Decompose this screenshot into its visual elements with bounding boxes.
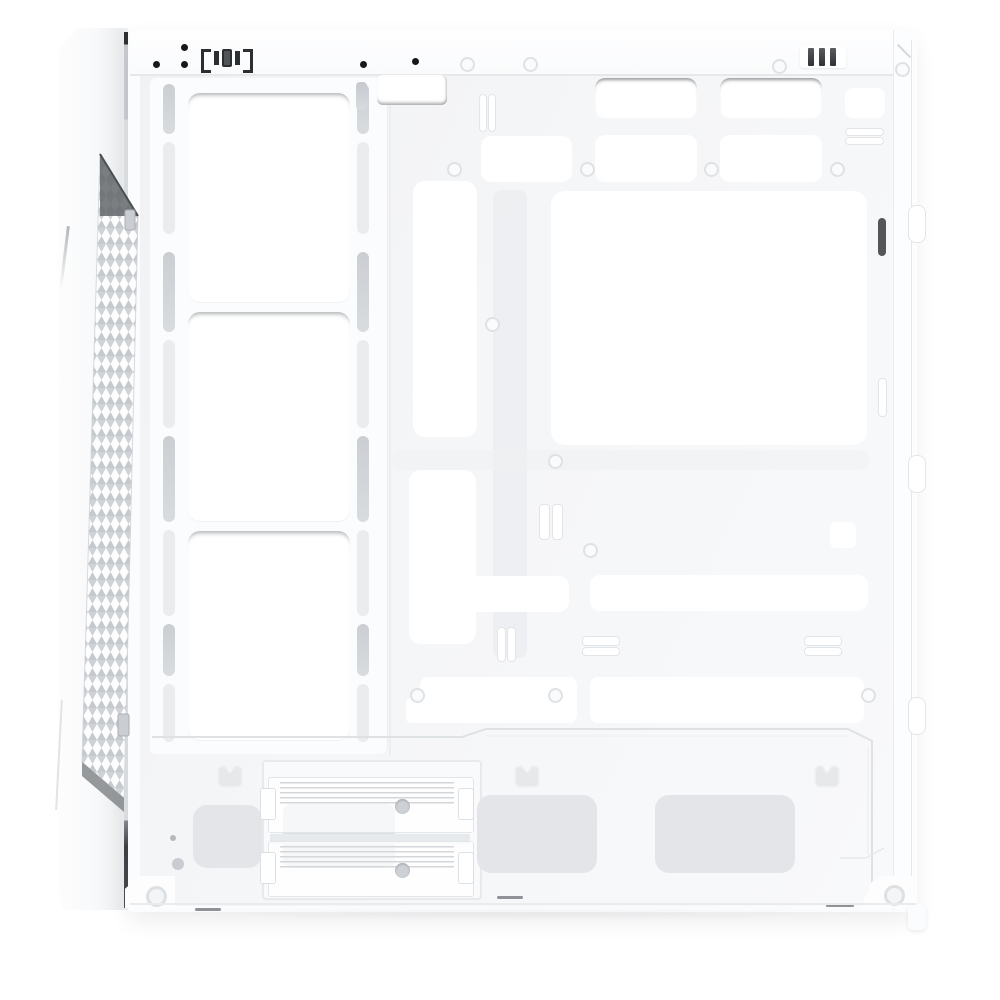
screw-dot	[153, 61, 160, 68]
vent-slot	[539, 504, 550, 540]
cable-cutout	[481, 136, 572, 182]
drive-tray-vents	[280, 782, 454, 806]
pc-case-product-photo	[0, 0, 1000, 1000]
cable-cutout	[413, 181, 477, 437]
cable-tie-cutout	[512, 762, 542, 789]
fan-rail-slot	[357, 684, 369, 742]
fan-opening-cutout	[188, 531, 350, 741]
drive-tray-clip	[458, 852, 474, 884]
screw-hole	[447, 162, 462, 177]
cable-cutout	[590, 575, 868, 611]
drive-tray-hole	[395, 863, 410, 878]
vent-slot	[507, 627, 516, 662]
latch-bar	[808, 48, 814, 66]
cable-cutout	[720, 78, 822, 118]
cable-cutout	[551, 191, 867, 445]
ground-shadow	[120, 910, 920, 918]
fan-rail-slot	[357, 436, 369, 522]
drive-tray-vents	[280, 846, 454, 870]
fan-opening-cutout	[188, 312, 350, 522]
vent-slot	[582, 647, 620, 656]
top-panel-latch-right	[800, 46, 846, 68]
screw-hole	[548, 688, 563, 703]
tray-seam-vertical	[389, 76, 391, 756]
vent-slot	[479, 94, 487, 132]
drive-tray-clip	[260, 788, 276, 820]
fan-rail-slot	[163, 436, 175, 522]
vent-slot	[845, 137, 884, 145]
screw-hole	[772, 59, 787, 74]
case-bottom-edge	[130, 903, 916, 905]
cable-cutout	[409, 470, 476, 644]
vent-pad	[655, 795, 795, 873]
drive-tray-clip	[458, 788, 474, 820]
fan-rail-slot	[163, 530, 175, 616]
chassis-rivet	[170, 835, 176, 841]
screw-hole	[410, 688, 425, 703]
vent-slot	[845, 128, 884, 136]
latch-bracket-icon	[243, 49, 253, 73]
rear-panel-tab	[908, 697, 926, 735]
cable-cutout	[595, 135, 697, 182]
rear-panel-tab	[908, 455, 926, 493]
drive-tray-clip	[260, 852, 276, 884]
fan-rail-slot	[163, 252, 175, 332]
vent-slot	[804, 647, 842, 656]
cable-cutout	[595, 78, 697, 118]
fan-rail-slot	[163, 684, 175, 742]
fan-rail-slot	[163, 84, 175, 134]
mesh-clip	[125, 210, 135, 230]
rear-panel-tab	[908, 205, 926, 243]
screw-hole	[523, 57, 538, 72]
frame-slot-dash	[497, 896, 523, 899]
top-panel-latch-left	[201, 49, 253, 67]
cable-tie-cutout	[215, 762, 245, 789]
fan-rail-slot	[357, 624, 369, 676]
latch-bracket-icon	[201, 49, 211, 73]
latch-bar	[830, 48, 836, 66]
vent-slot	[878, 218, 886, 256]
vent-slot	[356, 82, 367, 110]
cable-cutout	[377, 75, 447, 105]
screw-hole	[460, 57, 475, 72]
fan-rail-slot	[357, 252, 369, 332]
latch-bar	[235, 51, 240, 65]
screw-hole	[830, 162, 845, 177]
vent-pad	[193, 805, 262, 868]
drive-tray-hole	[395, 799, 410, 814]
vent-slot	[552, 504, 563, 540]
fan-rail-slot	[163, 142, 175, 234]
fan-opening-cutout	[188, 93, 350, 303]
vent-slot	[582, 636, 620, 646]
cable-cutout	[468, 576, 569, 612]
vent-pad	[477, 795, 597, 873]
latch-bar	[819, 48, 825, 66]
vent-slot	[488, 94, 496, 132]
screw-hole	[861, 688, 876, 703]
chassis-rivet	[172, 858, 184, 870]
mesh-clip	[118, 714, 129, 736]
cable-cutout	[720, 135, 822, 182]
vent-slot	[497, 627, 506, 662]
screw-hole	[895, 62, 910, 77]
tray-mid-seam-band	[392, 450, 870, 470]
screw-dot	[360, 61, 367, 68]
screw-hole	[583, 543, 598, 558]
screw-dot	[181, 44, 188, 51]
screw-hole	[704, 162, 719, 177]
screw-dot	[181, 61, 188, 68]
fan-rail-slot	[163, 624, 175, 676]
fan-rail-slot	[357, 340, 369, 428]
front-mesh-vent	[70, 140, 150, 820]
fan-rail-slot	[357, 530, 369, 616]
latch-center-block	[222, 49, 232, 67]
vent-slot	[878, 378, 887, 417]
screw-hole	[548, 454, 563, 469]
cable-cutout	[845, 88, 885, 118]
cable-tie-cutout	[812, 762, 842, 789]
screw-hole	[485, 317, 500, 332]
fan-rail-slot	[357, 142, 369, 234]
screw-hole	[580, 162, 595, 177]
screw-dot	[412, 58, 419, 65]
fan-rail-slot	[163, 340, 175, 428]
cable-cutout	[830, 522, 856, 548]
vent-slot	[804, 636, 842, 646]
cable-cutout	[590, 677, 864, 723]
latch-bar	[214, 51, 219, 65]
